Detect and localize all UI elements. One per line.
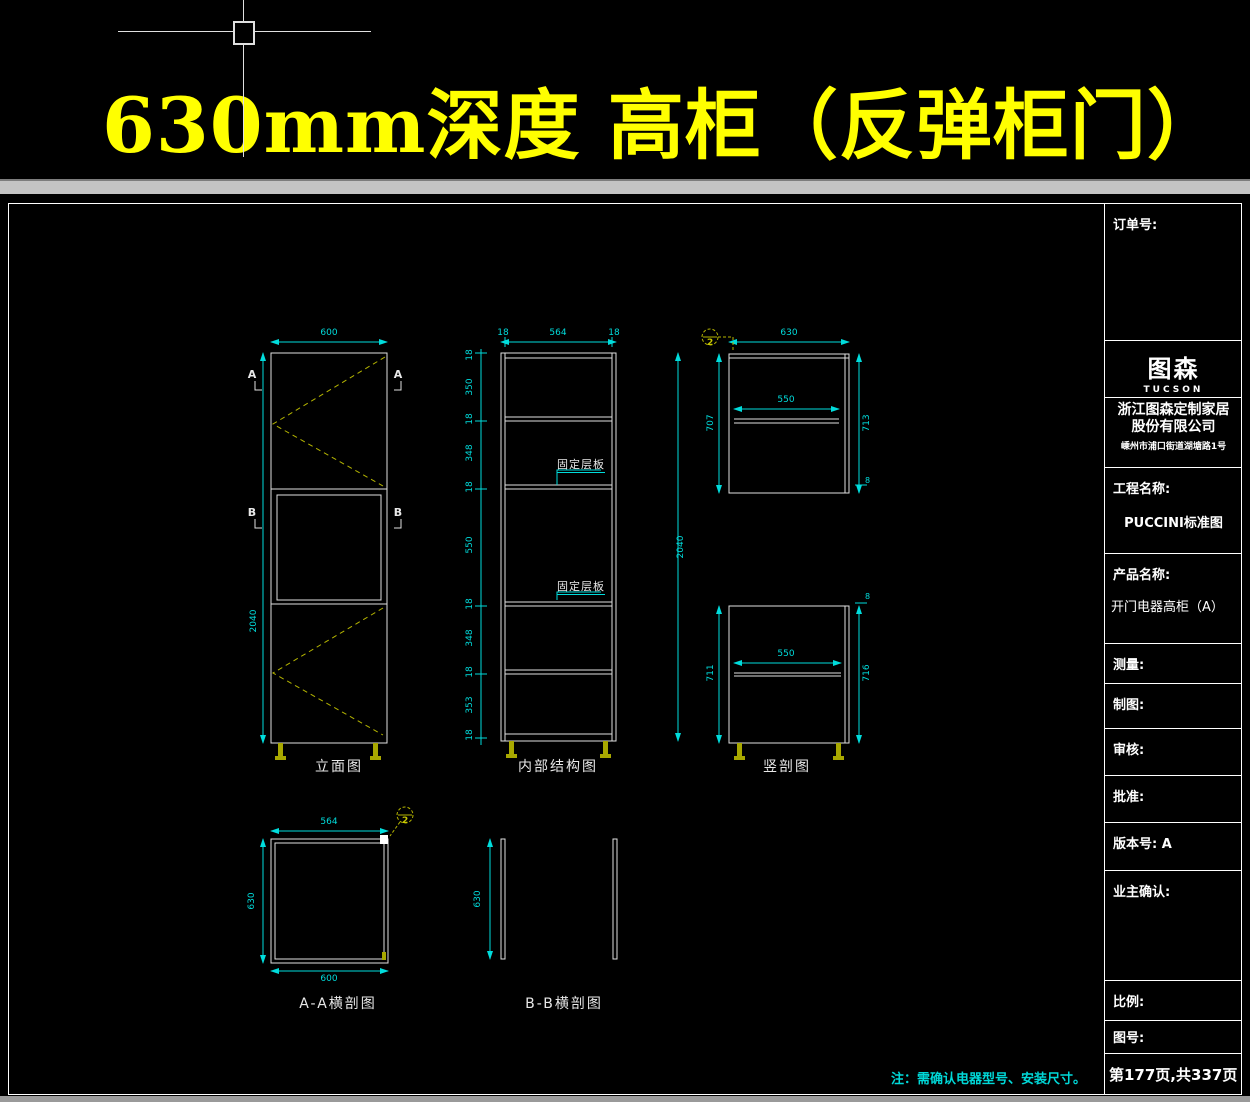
dim-label: 18 xyxy=(465,592,475,616)
measure-label: 测量: xyxy=(1113,654,1144,673)
dim-label: 600 xyxy=(304,974,354,984)
view-caption: B-B横剖图 xyxy=(514,993,614,1013)
dim-label: 716 xyxy=(862,659,872,687)
titleblock-review-row: 审核: xyxy=(1105,729,1242,776)
dim-label: 711 xyxy=(706,659,716,687)
project-label: 工程名称: xyxy=(1113,478,1170,497)
titleblock-product-row: 产品名称: 开门电器高柜（A） xyxy=(1105,554,1242,644)
section-marker-a: A xyxy=(246,368,258,381)
company-logo: 图森 xyxy=(1105,349,1242,384)
company-name-line1: 浙江图森定制家居 xyxy=(1105,402,1242,419)
draft-label: 制图: xyxy=(1113,694,1144,713)
dim-label: 8 xyxy=(865,476,870,486)
project-name: PUCCINI标准图 xyxy=(1105,512,1242,531)
dim-label: 630 xyxy=(473,885,483,913)
section-marker-a: A xyxy=(392,368,404,381)
bottom-bar xyxy=(0,1096,1250,1102)
titleblock-measure-row: 测量: xyxy=(1105,644,1242,684)
vertical-section-upper-drawing xyxy=(702,329,867,493)
internal-structure-drawing xyxy=(475,337,678,758)
confirmation-note: 注：需确认电器型号、安装尺寸。 xyxy=(891,1068,1103,1087)
dim-label: 350 xyxy=(465,375,475,399)
dim-label: 707 xyxy=(706,409,716,437)
titleblock-draft-row: 制图: xyxy=(1105,684,1242,729)
dim-label: 18 xyxy=(465,475,475,499)
dim-label: 2040 xyxy=(249,606,259,636)
product-label: 产品名称: xyxy=(1113,564,1170,583)
page-title: 630mm深度 高柜（反弹柜门） xyxy=(102,64,1224,174)
owner-confirm-label: 业主确认: xyxy=(1113,881,1170,900)
dim-label: 564 xyxy=(304,817,354,827)
detail-callout-number: 2 xyxy=(402,816,408,826)
version-label: 版本号: A xyxy=(1113,833,1172,852)
dim-label: 18 xyxy=(465,723,475,747)
section-aa-drawing xyxy=(263,807,413,971)
dim-label: 550 xyxy=(761,649,811,659)
review-label: 审核: xyxy=(1113,739,1144,758)
dim-label: 630 xyxy=(764,328,814,338)
dim-label: 18 xyxy=(465,343,475,367)
dim-label: 8 xyxy=(865,592,870,602)
vertical-section-lower-drawing xyxy=(719,603,867,760)
section-marker-b: B xyxy=(392,506,404,519)
titleblock-logo-row: 图森 TUCSON xyxy=(1105,341,1242,398)
dim-label: 564 xyxy=(533,328,583,338)
fixed-shelf-label: 固定层板 xyxy=(557,578,605,595)
crosshair-pickbox xyxy=(233,21,255,45)
drawing-no-label: 图号: xyxy=(1113,1027,1144,1046)
dim-label: 18 xyxy=(491,328,515,338)
approve-label: 批准: xyxy=(1113,786,1144,805)
order-no-label: 订单号: xyxy=(1113,214,1157,233)
dim-label: 713 xyxy=(862,409,872,437)
title-block: 订单号: 图森 TUCSON 浙江图森定制家居 股份有限公司 嵊州市浦口街道湖塘… xyxy=(1104,204,1242,1094)
view-caption: 内部结构图 xyxy=(508,756,608,776)
titleblock-version-row: 版本号: A xyxy=(1105,823,1242,871)
company-address: 嵊州市浦口街道湖塘路1号 xyxy=(1105,439,1242,452)
fixed-shelf-label: 固定层板 xyxy=(557,456,605,473)
dim-label: 2040 xyxy=(676,532,686,562)
dim-label: 550 xyxy=(465,533,475,557)
dim-label: 348 xyxy=(465,626,475,650)
view-caption: A-A横剖图 xyxy=(288,993,388,1013)
drawing-sheet: 600 2040 A A B B 立面图 18 564 18 2040 18 3… xyxy=(8,203,1242,1095)
view-caption: 竖剖图 xyxy=(747,756,827,776)
titleblock-approve-row: 批准: xyxy=(1105,776,1242,823)
dim-label: 353 xyxy=(465,693,475,717)
elevation-drawing xyxy=(255,342,401,760)
titleblock-project-row: 工程名称: PUCCINI标准图 xyxy=(1105,468,1242,554)
scale-label: 比例: xyxy=(1113,991,1144,1010)
titleblock-page-row: 第177页,共337页 xyxy=(1105,1054,1242,1094)
titleblock-owner-row: 业主确认: xyxy=(1105,871,1242,981)
dim-label: 630 xyxy=(247,887,257,915)
separator-bar xyxy=(0,179,1250,194)
titleblock-company-row: 浙江图森定制家居 股份有限公司 嵊州市浦口街道湖塘路1号 xyxy=(1105,398,1242,468)
page-indicator: 第177页,共337页 xyxy=(1109,1064,1237,1085)
dim-label: 348 xyxy=(465,441,475,465)
dim-label: 18 xyxy=(465,407,475,431)
titleblock-order-row: 订单号: xyxy=(1105,204,1242,341)
dim-label: 18 xyxy=(602,328,626,338)
detail-callout-number: 2 xyxy=(707,338,713,348)
titleblock-drawingno-row: 图号: xyxy=(1105,1021,1242,1054)
dim-label: 600 xyxy=(304,328,354,338)
dim-label: 550 xyxy=(761,395,811,405)
section-marker-b: B xyxy=(246,506,258,519)
dim-label: 18 xyxy=(465,660,475,684)
product-name: 开门电器高柜（A） xyxy=(1111,596,1224,615)
view-caption: 立面图 xyxy=(299,756,379,776)
section-bb-drawing xyxy=(490,839,617,959)
titleblock-scale-row: 比例: xyxy=(1105,981,1242,1021)
company-logo-latin: TUCSON xyxy=(1105,385,1242,395)
company-name-line2: 股份有限公司 xyxy=(1105,419,1242,436)
